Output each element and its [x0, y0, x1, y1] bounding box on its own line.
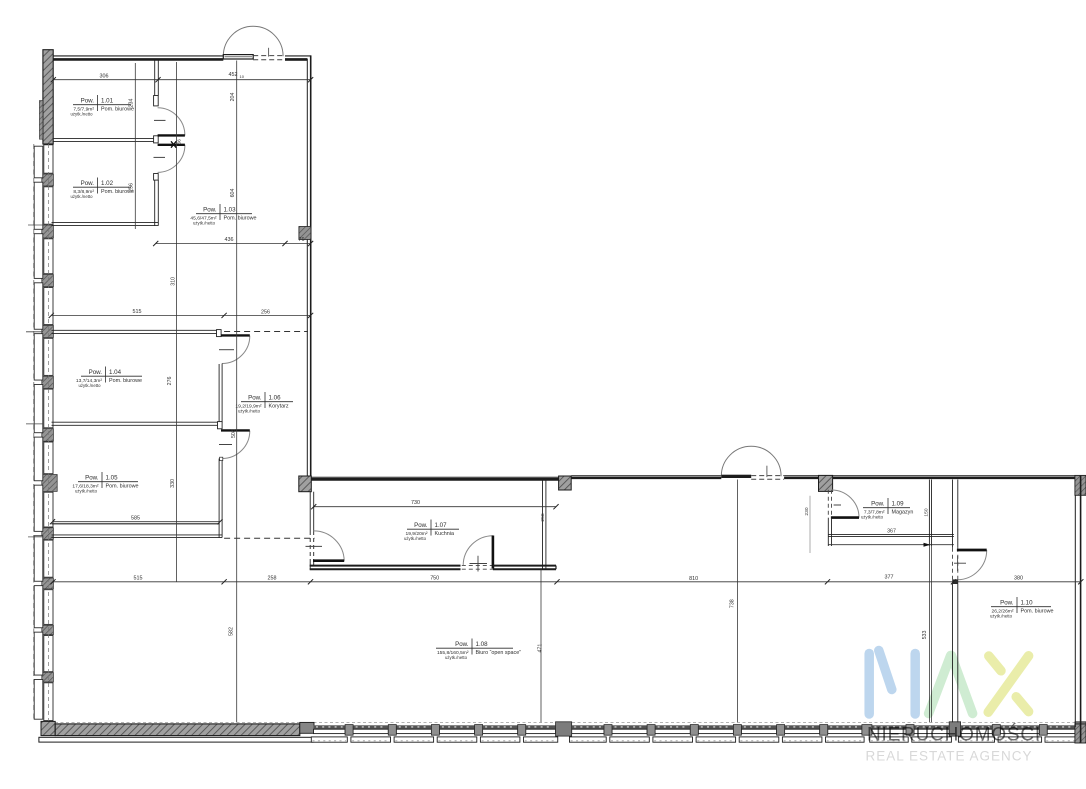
svg-text:471: 471 [538, 644, 544, 653]
svg-text:230: 230 [804, 507, 810, 515]
svg-text:Pow.: Pow. [1000, 600, 1014, 607]
svg-text:258: 258 [540, 513, 546, 521]
svg-text:Pow.: Pow. [81, 180, 95, 187]
svg-text:Pow.: Pow. [414, 522, 428, 529]
svg-text:Korytarz: Korytarz [269, 404, 289, 410]
svg-text:NIERUCHOMOŚCI: NIERUCHOMOŚCI [867, 724, 1041, 746]
svg-text:REAL ESTATE AGENCY: REAL ESTATE AGENCY [865, 749, 1032, 764]
svg-text:Pom. biurowe: Pom. biurowe [101, 189, 134, 195]
svg-text:użytk./netto: użytk./netto [193, 221, 216, 226]
svg-text:306: 306 [100, 74, 109, 80]
svg-text:276: 276 [167, 376, 173, 385]
svg-text:436: 436 [225, 237, 234, 243]
svg-text:150: 150 [923, 508, 929, 516]
svg-text:738: 738 [730, 599, 736, 608]
svg-text:użytk./netto: użytk./netto [79, 383, 102, 388]
svg-text:604: 604 [230, 189, 236, 198]
svg-text:użytk./netto: użytk./netto [75, 489, 98, 494]
svg-text:810: 810 [689, 576, 698, 582]
svg-text:Magazyn: Magazyn [892, 510, 914, 516]
svg-text:Pom. biurowe: Pom. biurowe [109, 378, 142, 384]
svg-text:1.10: 1.10 [1021, 600, 1034, 607]
svg-text:Pom. biurowe: Pom. biurowe [106, 484, 139, 490]
svg-text:515: 515 [133, 309, 142, 315]
svg-text:1.03: 1.03 [224, 207, 237, 214]
svg-text:256: 256 [261, 309, 270, 315]
svg-text:Pow.: Pow. [248, 395, 262, 402]
svg-text:452: 452 [229, 72, 238, 78]
svg-text:508: 508 [231, 429, 237, 438]
svg-text:1.05: 1.05 [106, 475, 119, 482]
svg-text:Pow.: Pow. [89, 369, 103, 376]
svg-text:Pow.: Pow. [85, 475, 99, 482]
svg-text:377: 377 [885, 575, 894, 581]
svg-text:1.09: 1.09 [892, 501, 905, 508]
svg-text:Pom. biurowe: Pom. biurowe [101, 107, 134, 113]
svg-text:310: 310 [170, 277, 176, 286]
svg-text:Biuro “open space”: Biuro “open space” [476, 650, 522, 656]
svg-text:użytk./netto: użytk./netto [990, 614, 1013, 619]
svg-text:750: 750 [430, 575, 439, 581]
svg-text:204: 204 [230, 93, 236, 102]
svg-text:1.01: 1.01 [101, 98, 114, 105]
svg-text:367: 367 [887, 528, 896, 534]
svg-text:Pow.: Pow. [871, 501, 885, 508]
svg-text:1.06: 1.06 [269, 395, 282, 402]
svg-text:Pow.: Pow. [203, 207, 217, 214]
svg-text:56: 56 [176, 139, 181, 145]
svg-text:330: 330 [170, 479, 176, 488]
svg-text:515: 515 [134, 575, 143, 581]
svg-text:730: 730 [411, 500, 420, 506]
svg-text:Kuchnia: Kuchnia [435, 531, 454, 537]
svg-text:użytk./netto: użytk./netto [238, 409, 261, 414]
svg-text:258: 258 [268, 576, 277, 582]
svg-text:Pom. biurowe: Pom. biurowe [1021, 609, 1054, 615]
svg-text:10: 10 [240, 74, 245, 79]
svg-text:585: 585 [131, 515, 140, 521]
svg-text:Pow.: Pow. [81, 98, 95, 105]
svg-text:1.08: 1.08 [476, 641, 489, 648]
svg-text:380: 380 [1014, 575, 1023, 581]
svg-text:użytk./netto: użytk./netto [445, 655, 468, 660]
svg-text:Pom. biurowe: Pom. biurowe [224, 216, 257, 222]
svg-text:1.07: 1.07 [435, 522, 448, 529]
svg-text:1.04: 1.04 [109, 369, 122, 376]
svg-text:użytk./netto: użytk./netto [861, 515, 884, 520]
svg-text:Pow.: Pow. [455, 641, 469, 648]
svg-text:użytk./netto: użytk./netto [71, 112, 94, 117]
svg-text:76: 76 [299, 237, 305, 243]
svg-text:użytk./netto: użytk./netto [71, 194, 94, 199]
svg-text:533: 533 [922, 631, 928, 640]
svg-text:użytk./netto: użytk./netto [404, 536, 427, 541]
svg-text:1.02: 1.02 [101, 180, 114, 187]
svg-text:582: 582 [228, 627, 234, 636]
